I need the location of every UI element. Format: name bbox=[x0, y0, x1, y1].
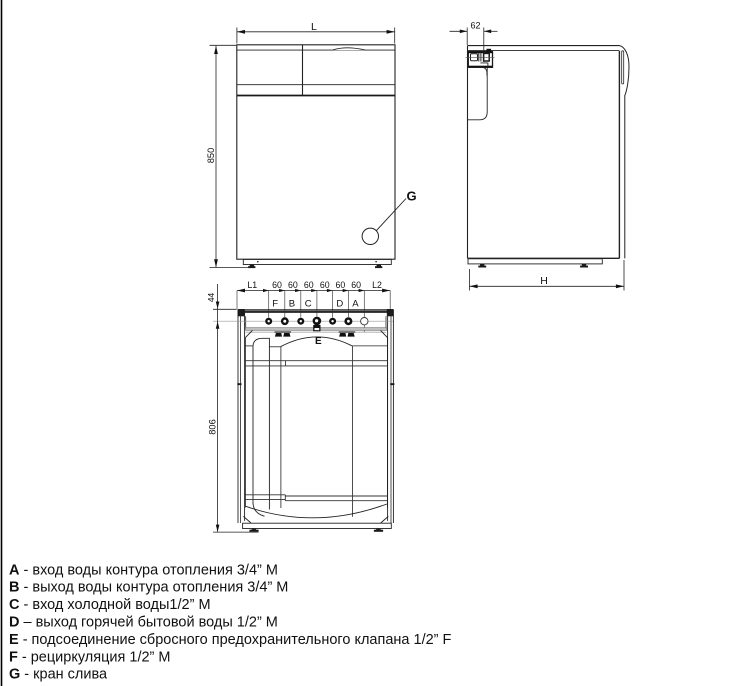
svg-text:B - выход воды контура отопле: B - выход воды контура отопления 3/4” М bbox=[9, 580, 288, 596]
svg-text:60: 60 bbox=[272, 280, 282, 290]
svg-text:60: 60 bbox=[336, 280, 346, 290]
svg-text:B: B bbox=[289, 298, 295, 309]
svg-text:60: 60 bbox=[304, 280, 314, 290]
svg-text:44: 44 bbox=[206, 293, 216, 303]
svg-text:F - рециркуляция 1/2” М: F - рециркуляция 1/2” М bbox=[9, 649, 170, 665]
svg-text:G - кран слива: G - кран слива bbox=[9, 667, 108, 683]
svg-text:850: 850 bbox=[206, 148, 216, 164]
svg-text:L1: L1 bbox=[247, 280, 257, 290]
svg-text:L: L bbox=[311, 21, 317, 33]
svg-text:60: 60 bbox=[351, 280, 361, 290]
svg-text:A: A bbox=[352, 298, 359, 309]
svg-text:G: G bbox=[407, 189, 417, 204]
svg-text:A - вход воды контура отоплени: A - вход воды контура отопления 3/4” М bbox=[9, 562, 278, 578]
svg-text:C - вход холодной воды1/2” М: C - вход холодной воды1/2” М bbox=[9, 597, 211, 613]
svg-text:F: F bbox=[272, 298, 278, 309]
svg-text:D: D bbox=[336, 298, 343, 309]
svg-text:60: 60 bbox=[320, 280, 330, 290]
svg-text:H: H bbox=[540, 275, 548, 287]
svg-text:E - подсоединение сбросного пр: E - подсоединение сбросного предохраните… bbox=[9, 632, 452, 648]
svg-text:E: E bbox=[315, 336, 322, 347]
svg-text:60: 60 bbox=[288, 280, 298, 290]
svg-text:806: 806 bbox=[207, 419, 217, 435]
svg-text:62: 62 bbox=[470, 21, 480, 31]
svg-text:C: C bbox=[305, 298, 312, 309]
svg-text:L2: L2 bbox=[372, 280, 382, 290]
svg-text:D – выход горячей бытовой воды: D – выход горячей бытовой воды 1/2” М bbox=[9, 615, 278, 631]
